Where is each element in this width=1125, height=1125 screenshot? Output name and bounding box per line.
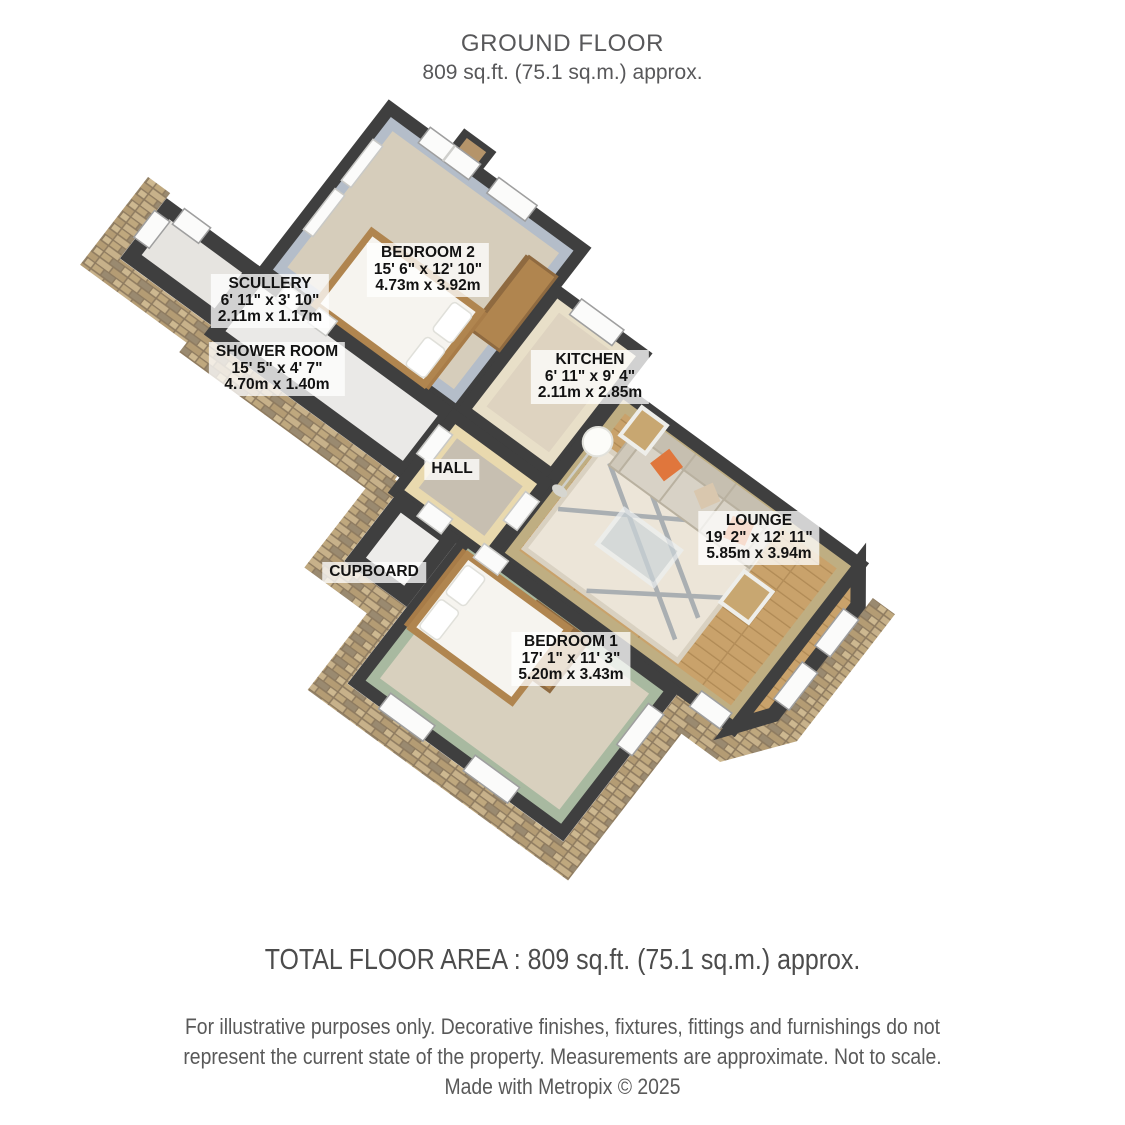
room-dims-imperial: 15' 6" x 12' 10"	[374, 262, 482, 279]
room-label-kitchen: KITCHEN 6' 11" x 9' 4" 2.11m x 2.85m	[531, 350, 649, 404]
room-name: SHOWER ROOM	[216, 344, 338, 361]
room-name: HALL	[431, 461, 472, 478]
disclaimer-line: Made with Metropix © 2025	[68, 1072, 1058, 1102]
room-name: CUPBOARD	[329, 564, 419, 581]
room-label-cupboard: CUPBOARD	[322, 562, 426, 583]
room-dims-metric: 4.73m x 3.92m	[374, 278, 482, 295]
room-dims-imperial: 15' 5" x 4' 7"	[216, 361, 338, 378]
floorplan-page: GROUND FLOOR 809 sq.ft. (75.1 sq.m.) app…	[0, 0, 1125, 1125]
room-name: BEDROOM 2	[374, 245, 482, 262]
room-dims-imperial: 6' 11" x 9' 4"	[538, 369, 642, 386]
room-label-scullery: SCULLERY 6' 11" x 3' 10" 2.11m x 1.17m	[211, 274, 329, 328]
room-label-lounge: LOUNGE 19' 2" x 12' 11" 5.85m x 3.94m	[698, 511, 819, 565]
room-label-shower-room: SHOWER ROOM 15' 5" x 4' 7" 4.70m x 1.40m	[209, 342, 345, 396]
room-label-bedroom-2: BEDROOM 2 15' 6" x 12' 10" 4.73m x 3.92m	[367, 243, 489, 297]
room-name: LOUNGE	[705, 513, 812, 530]
disclaimer-line: represent the current state of the prope…	[68, 1042, 1058, 1072]
room-name: KITCHEN	[538, 352, 642, 369]
room-dims-imperial: 6' 11" x 3' 10"	[218, 293, 322, 310]
room-name: SCULLERY	[218, 276, 322, 293]
floor-plan-3d	[0, 0, 996, 953]
room-dims-metric: 5.20m x 3.43m	[518, 667, 623, 684]
disclaimer-line: For illustrative purposes only. Decorati…	[68, 1012, 1058, 1042]
room-dims-imperial: 17' 1" x 11' 3"	[518, 651, 623, 668]
room-label-bedroom-1: BEDROOM 1 17' 1" x 11' 3" 5.20m x 3.43m	[511, 632, 630, 686]
room-dims-metric: 4.70m x 1.40m	[216, 377, 338, 394]
room-label-hall: HALL	[424, 459, 479, 480]
room-dims-metric: 5.85m x 3.94m	[705, 546, 812, 563]
room-dims-imperial: 19' 2" x 12' 11"	[705, 530, 812, 547]
disclaimer: For illustrative purposes only. Decorati…	[68, 1012, 1058, 1102]
room-name: BEDROOM 1	[518, 634, 623, 651]
room-dims-metric: 2.11m x 2.85m	[538, 385, 642, 402]
total-floor-area: TOTAL FLOOR AREA : 809 sq.ft. (75.1 sq.m…	[79, 944, 1047, 977]
room-dims-metric: 2.11m x 1.17m	[218, 309, 322, 326]
